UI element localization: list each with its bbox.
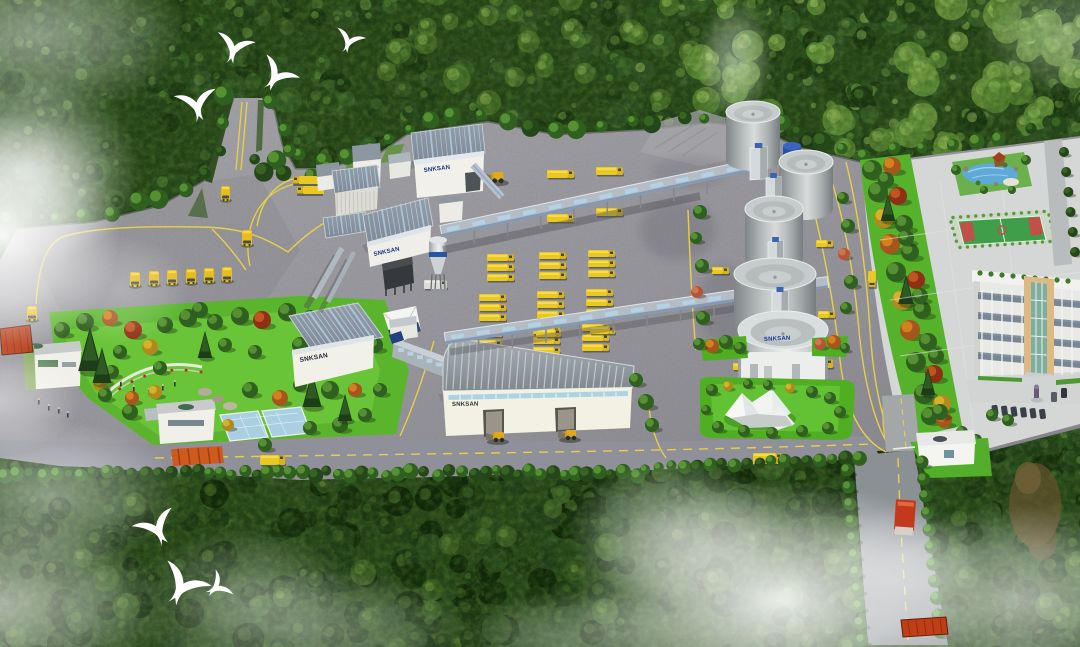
svg-text:SNKSAN: SNKSAN [452,402,479,408]
